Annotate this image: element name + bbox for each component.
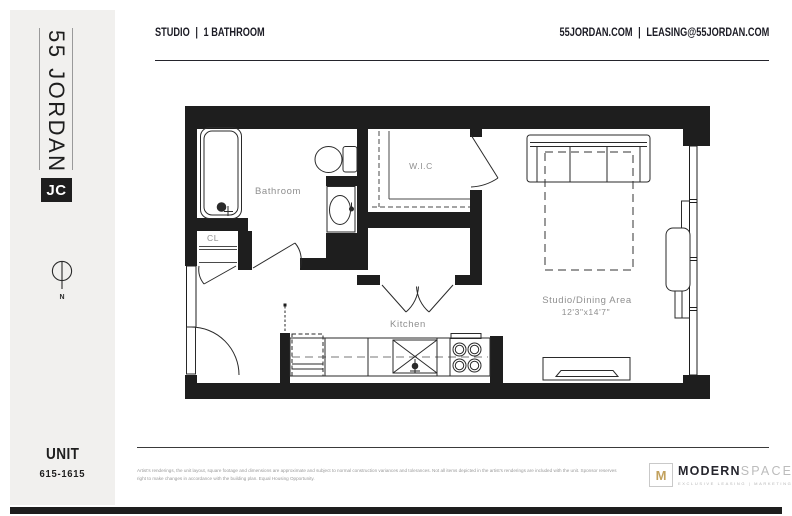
disclaimer-text: Artist's renderings, the unit layout, sq… [137,467,617,482]
floorplan-drawing: Bathroom CL W.I.C Kitchen Studio/Dining … [185,105,710,400]
cl-label: CL [207,233,219,243]
header-divider-line [155,60,769,61]
unit-type-label: STUDIO [155,27,190,39]
toilet [315,147,357,173]
header-separator-2: | [638,27,641,39]
modern-spaces-wordmark: MODERNSPACES EXCLUSIVE LEASING | MARKETI… [678,463,792,486]
console-table [543,358,630,381]
bathroom-count-label: 1 BATHROOM [204,27,265,39]
wall-bottom [185,383,710,399]
wall-under-vanity [326,233,357,258]
cl-door [199,266,236,284]
wall-thin-entry [187,266,197,327]
wall-closet-south-left [357,275,380,285]
unit-label: UNIT [46,446,79,464]
modern-spaces-name-bold: MODERN [678,464,741,478]
closet-shelves [199,247,237,263]
modern-spaces-tagline: EXCLUSIVE LEASING | MARKETING [678,481,792,486]
wall-closet-south-right [455,275,482,285]
bottom-accent-bar [10,507,782,514]
sidebar: 55 JORDAN JC N UNIT 615-1615 [10,10,115,505]
wall-kitchen-right-stub [490,336,503,383]
modern-spaces-mark-icon: M [649,463,673,487]
wall-sink-niche [326,176,357,186]
modern-spaces-logo: M MODERNSPACES EXCLUSIVE LEASING | MARKE… [649,463,792,487]
wall-left-upper [185,106,197,266]
wall-corner-bottom-right [683,375,710,399]
refrigerator [292,334,323,376]
wall-bath-south [300,258,357,270]
modern-spaces-name-light: SPACES [741,464,792,478]
window-wall [690,146,698,375]
studio-dimensions-label: 12'3"x14'7" [562,307,611,317]
wall-bathroom-divider [357,129,368,270]
jc-badge-label: JC [46,182,66,199]
header-contact-info: 55JORDAN.COM|LEASING@55JORDAN.COM [559,27,769,39]
wall-tub-nook [197,218,248,231]
stove [451,334,481,373]
wic-door [471,135,498,187]
walls [185,106,710,399]
wall-wic-right [470,190,482,285]
website-link[interactable]: 55JORDAN.COM [559,27,632,39]
bathtub [201,128,242,219]
closet-double-doors [382,285,453,312]
compass-icon: N [51,259,73,303]
wall-kitchen-left-stub [280,333,290,383]
wall-wic-closet-divider [357,212,482,228]
footer-divider-line [137,447,769,448]
entry-door [187,327,240,375]
email-link[interactable]: LEASING@55JORDAN.COM [646,27,769,39]
building-logo-vertical: 55 JORDAN [41,30,71,174]
kitchen-label: Kitchen [390,319,426,330]
jc-badge: JC [41,178,72,202]
bed-dashed-outline [545,152,633,270]
bathroom-door [253,243,301,268]
wall-corner-top-right [683,106,710,146]
bathroom-sink [327,187,355,233]
wall-top [185,106,683,129]
logo-rails: 55 JORDAN [39,28,73,170]
header-unit-info: STUDIO|1 BATHROOM [155,27,265,39]
wic-label: W.I.C [409,161,433,171]
ptac-unit [666,201,690,318]
bathroom-label: Bathroom [255,186,301,197]
wall-cl-right [238,231,252,270]
unit-number: 615-1615 [40,468,86,480]
studio-label: Studio/Dining Area [542,295,632,306]
compass-north-label: N [59,294,64,301]
unit-block: UNIT 615-1615 [10,446,115,482]
flyer-page: 55 JORDAN JC N UNIT 615-1615 STUDIO|1 BA… [0,0,792,516]
header-separator: | [195,27,198,39]
kitchen-counter [284,304,491,377]
